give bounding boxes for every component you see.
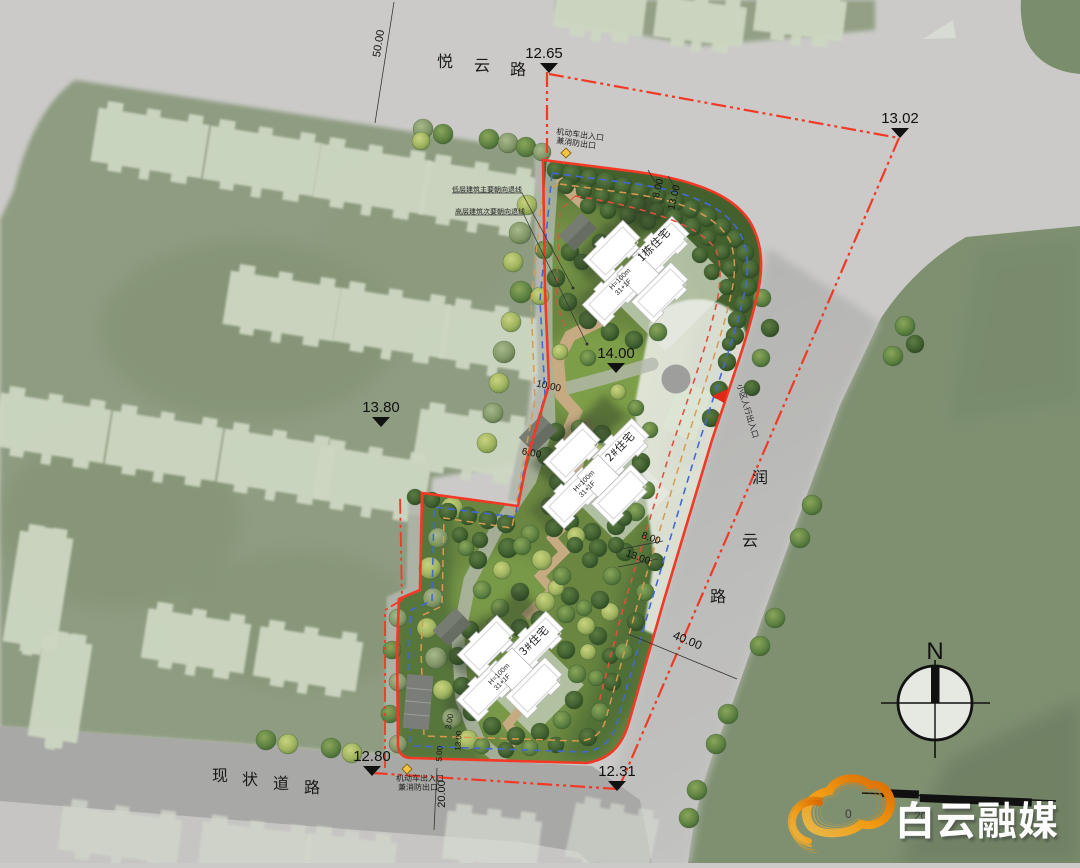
svg-text:20.00: 20.00 [436, 780, 448, 808]
svg-text:13.80: 13.80 [362, 399, 400, 416]
svg-text:13.02: 13.02 [881, 110, 919, 127]
svg-text:5.00: 5.00 [434, 745, 444, 762]
svg-text:0: 0 [845, 807, 852, 821]
svg-text:12.65: 12.65 [525, 45, 563, 62]
svg-text:13.00: 13.00 [453, 730, 463, 751]
svg-text:14.00: 14.00 [597, 345, 635, 362]
svg-text:12.31: 12.31 [598, 763, 636, 780]
svg-text:N: N [926, 638, 943, 665]
svg-text:12.80: 12.80 [353, 748, 391, 765]
